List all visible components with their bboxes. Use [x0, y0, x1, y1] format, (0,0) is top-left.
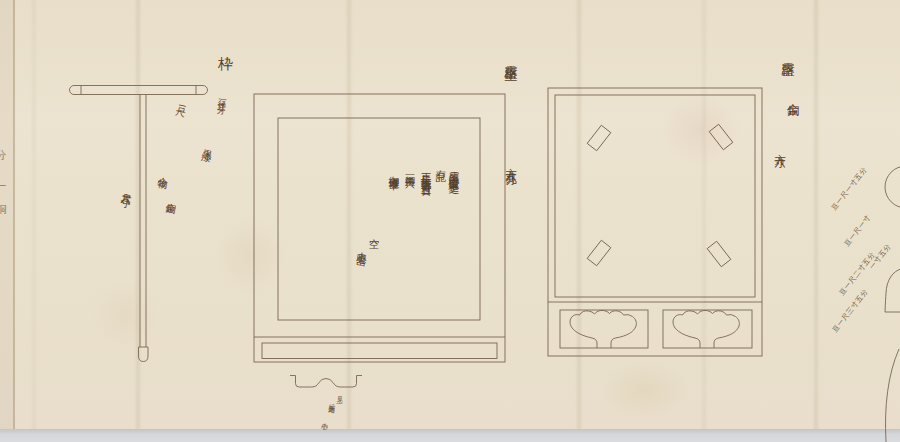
- inscription-col-5: 御修理畢: [388, 168, 400, 174]
- edge-fragment-left-1: 分: [0, 140, 6, 142]
- cloud-panel-left: [570, 310, 636, 348]
- molding-profile-drawing: [290, 376, 362, 388]
- edge-fragment-left-3: 銅: [0, 195, 6, 197]
- center-note-2: 中心見出: [356, 243, 368, 250]
- staff-diameter-note: 径一寸二分: [218, 93, 229, 102]
- inscription-col-1: 露盤中心空以繪造之: [448, 163, 460, 177]
- robanza-dimension: 方六寸九分: [503, 159, 516, 167]
- inscription-col-4: 三卿輿: [404, 166, 416, 171]
- inscription-col-3: 正長元年戊申十月廿三日: [420, 164, 432, 181]
- diamond-ornament: [709, 124, 733, 150]
- robanza-drawing: [254, 94, 505, 362]
- staff-metal-mark: ゝ: [170, 218, 178, 227]
- staff-drawing: [70, 86, 208, 362]
- diamond-ornament: [587, 125, 611, 151]
- staff-title: 枠: [218, 56, 233, 74]
- roban-material: 金銅: [786, 94, 800, 97]
- center-note-1: 空: [368, 230, 380, 232]
- inscription-col-2: 有記: [435, 162, 447, 165]
- edge-fragment-left-2: 一: [0, 180, 6, 182]
- diamond-ornament: [587, 240, 611, 266]
- edge-partial-shapes: [885, 166, 900, 442]
- roban-dimension: 方六寸: [772, 145, 785, 150]
- roban-title: 露盤: [780, 52, 795, 55]
- roban-drawing: [548, 88, 762, 356]
- line-art: [0, 0, 900, 442]
- diamond-ornament: [707, 241, 731, 267]
- scroll-photograph: 枠 径一寸二分 二尺 黒漆 金物 金銅 ゝ 六尺三寸 露盤坐 方六寸九分 露盤中…: [0, 0, 900, 442]
- robanza-title: 露盤坐: [503, 55, 518, 60]
- cloud-panel-right: [673, 310, 739, 348]
